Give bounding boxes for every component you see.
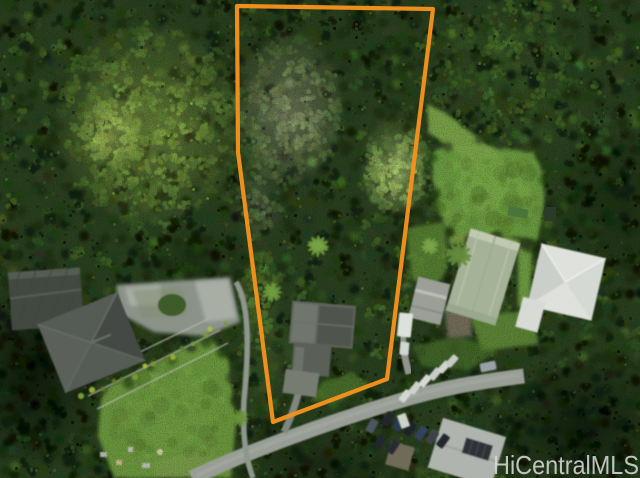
svg-text:HiCentralMLS: HiCentralMLS	[493, 450, 639, 478]
